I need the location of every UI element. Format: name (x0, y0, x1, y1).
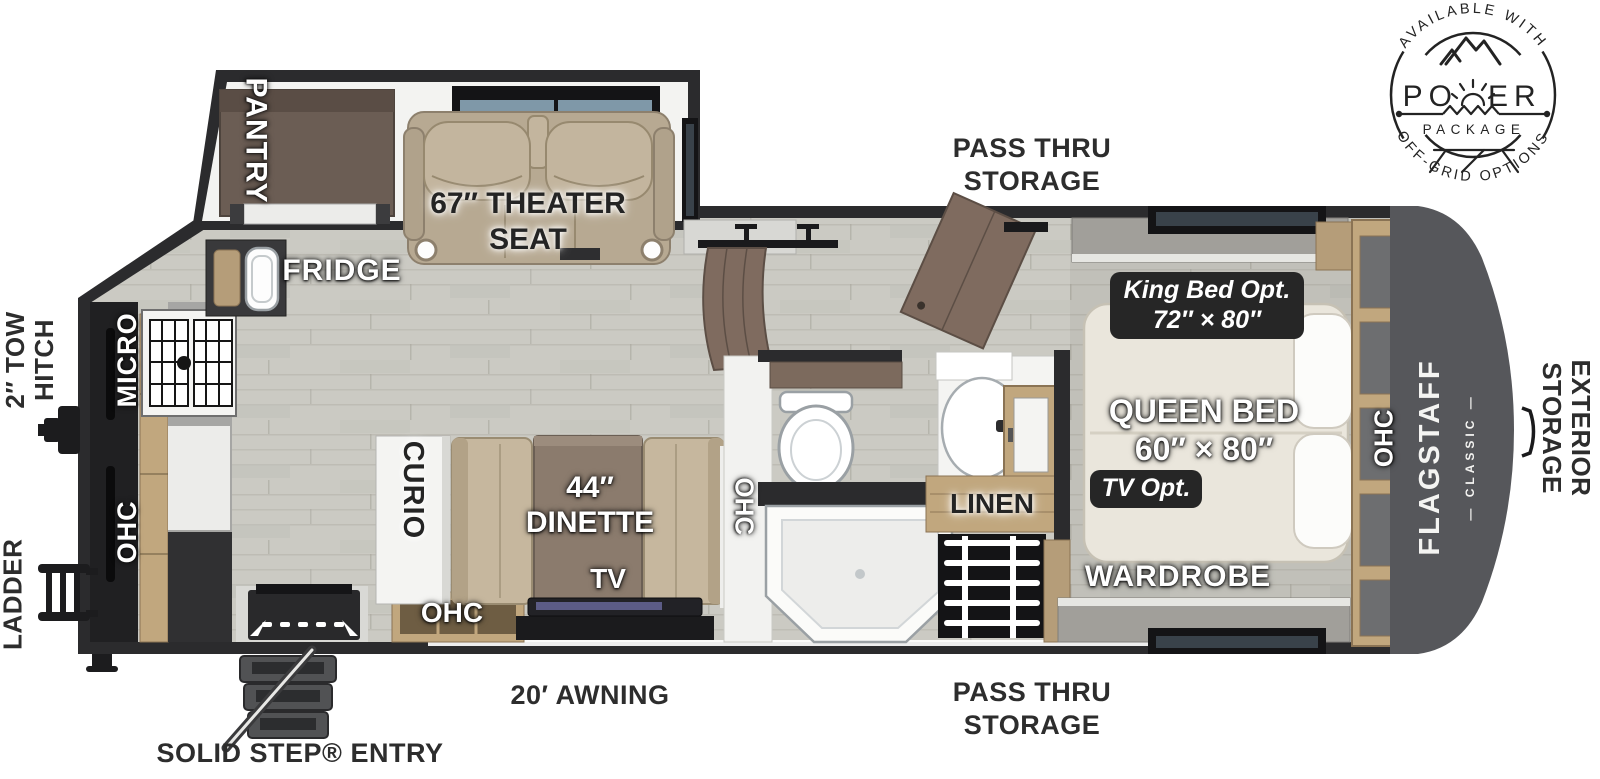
logo-package-text: PACKAGE (1423, 122, 1526, 137)
theater-seat-label: 67″ THEATERSEAT (398, 186, 658, 258)
wardrobe-label: WARDROBE (1058, 560, 1298, 593)
queen-bed-label: QUEEN BED60″ × 80″ (1084, 392, 1324, 468)
logo-arc-top-text: AVAILABLE WITH (1396, 1, 1551, 51)
curio-label: CURIO (396, 415, 428, 565)
linen-label: LINEN (922, 489, 1062, 520)
entry-door-mat (236, 584, 368, 642)
logo-word-right: ER (1488, 80, 1542, 113)
dinette-label: 44″DINETTE (500, 470, 680, 540)
toilet (779, 392, 853, 490)
slideout-side-window (682, 118, 698, 222)
mountains-icon (1441, 38, 1500, 64)
nightstand (1316, 222, 1352, 270)
rear-handle (1522, 408, 1534, 456)
tow-hitch-label: 2″ TOWHITCH (1, 285, 59, 435)
flagstaff-brand-label: FLAGSTAFF — CLASSIC — (1397, 342, 1495, 572)
ohc-kitchen-label: OHC (113, 487, 143, 577)
awning-label: 20′ AWNING (480, 681, 700, 711)
vanity-sink (936, 352, 1058, 490)
ohc-dinette-bottom-label: OHC (402, 598, 502, 629)
ladder-label: LADDER (0, 524, 27, 664)
bath-counter (770, 362, 902, 388)
pass-thru-storage-label-top: PASS THRUSTORAGE (922, 132, 1142, 198)
tv-unit (516, 598, 714, 640)
tv-option-badge: TV Opt. (1090, 470, 1202, 508)
tv-label: TV (568, 564, 648, 595)
king-bed-option-badge: King Bed Opt.72″ × 80″ (1110, 272, 1304, 339)
entry-steps[interactable] (226, 650, 336, 748)
linen-wire-shelves (938, 534, 1046, 638)
exterior-storage-label: EXTERIORSTORAGE (1537, 333, 1595, 523)
floorplan-page: AVAILABLE WITH OFF-GRID OPTIONS PO ER PA… (0, 0, 1600, 779)
power-package-logo: AVAILABLE WITH OFF-GRID OPTIONS PO ER PA… (1391, 1, 1555, 185)
solid-step-entry-label: SOLID STEP® ENTRY (130, 739, 470, 769)
ohc-bedroom-label: OHC (1370, 398, 1399, 478)
stabilizer-jack (86, 654, 118, 672)
micro-label: MICRO (113, 290, 143, 430)
stove-cooktop (142, 310, 236, 416)
logo-word-left: PO (1403, 80, 1458, 113)
ohc-dinette-side-label: OHC (730, 466, 759, 546)
fridge-label: FRIDGE (242, 254, 442, 287)
pass-thru-storage-label-bottom: PASS THRUSTORAGE (922, 676, 1142, 742)
pantry-label: PANTRY (240, 56, 273, 226)
